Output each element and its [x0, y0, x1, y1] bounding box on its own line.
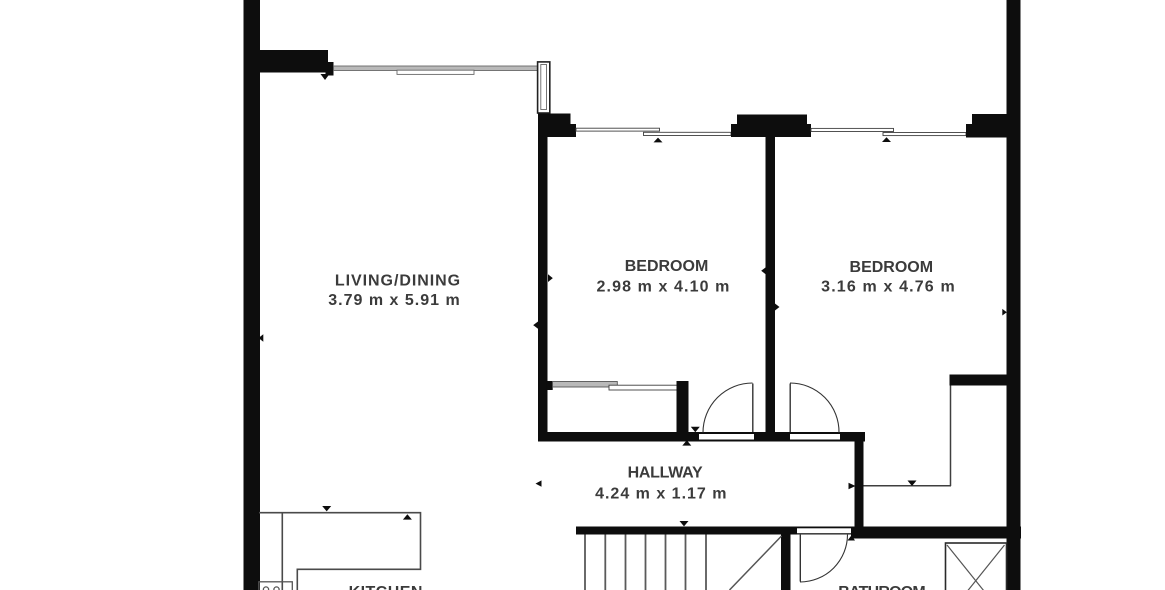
svg-text:BEDROOM: BEDROOM: [850, 259, 934, 276]
svg-text:4.24 m x 1.17 m: 4.24 m x 1.17 m: [595, 486, 727, 503]
svg-text:KITCHEN: KITCHEN: [349, 584, 423, 590]
svg-text:LIVING/DINING: LIVING/DINING: [335, 273, 461, 290]
svg-text:3.79 m x 5.91 m: 3.79 m x 5.91 m: [328, 292, 460, 309]
svg-text:BATHROOM: BATHROOM: [838, 584, 925, 590]
svg-text:HALLWAY: HALLWAY: [628, 464, 703, 481]
svg-text:BEDROOM: BEDROOM: [625, 258, 709, 275]
svg-text:2.98 m x 4.10 m: 2.98 m x 4.10 m: [597, 279, 731, 296]
svg-text:3.16 m x 4.76 m: 3.16 m x 4.76 m: [821, 279, 956, 296]
